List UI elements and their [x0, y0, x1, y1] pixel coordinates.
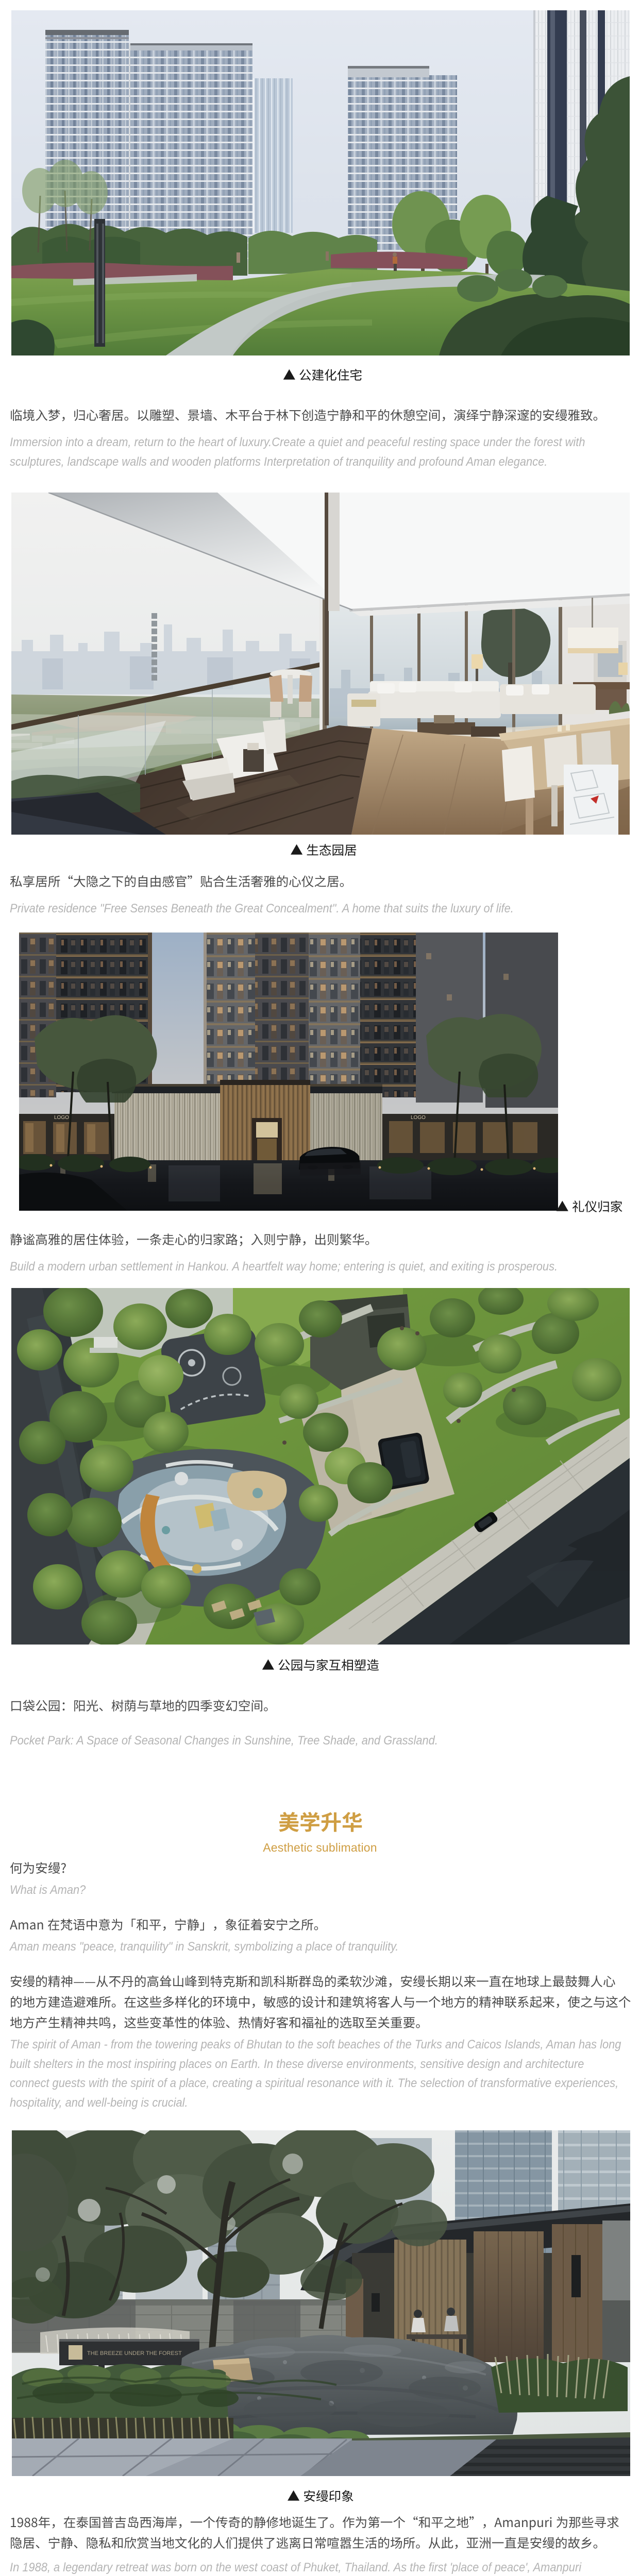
- svg-text:LOGO: LOGO: [411, 1115, 426, 1121]
- svg-text:THE BREEZE UNDER THE FOREST: THE BREEZE UNDER THE FOREST: [87, 2350, 182, 2357]
- svg-text:LOGO: LOGO: [54, 1115, 69, 1121]
